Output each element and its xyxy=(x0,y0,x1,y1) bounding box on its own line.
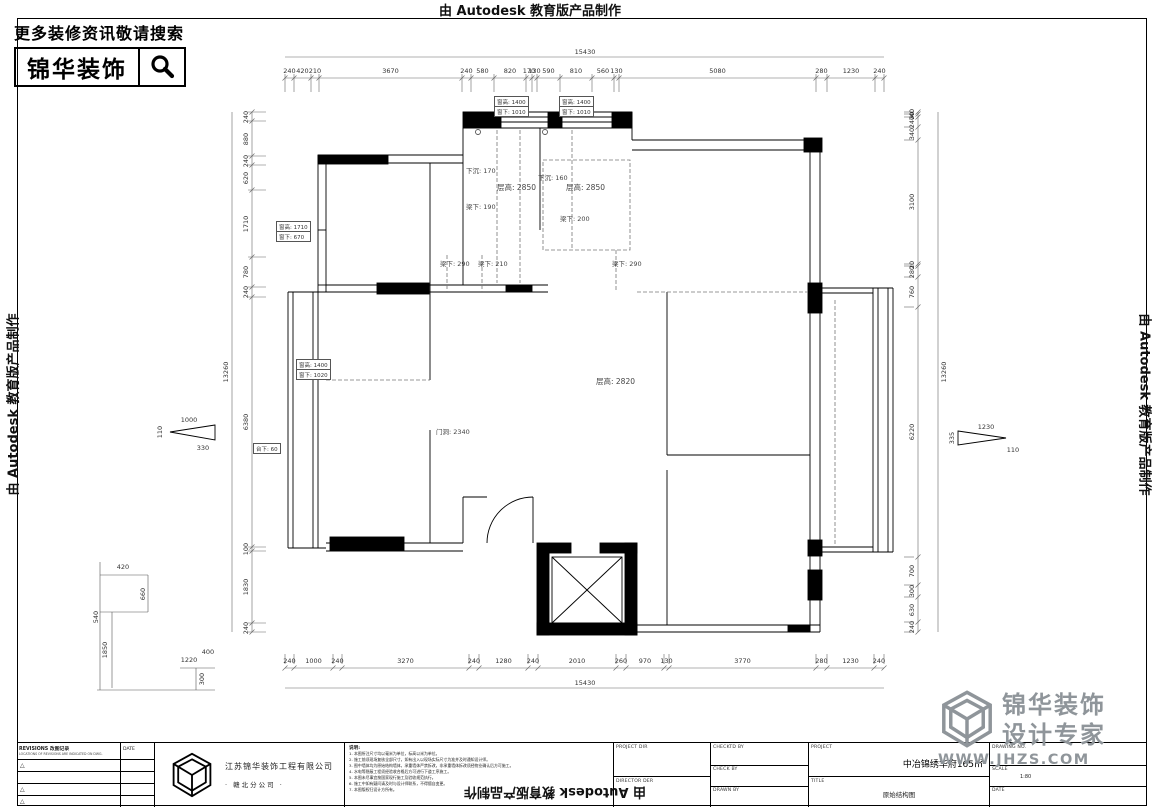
watermark-brand: 锦华装饰 xyxy=(1002,690,1106,720)
company-name: 江苏锦华装饰工程有限公司 xyxy=(225,761,333,772)
dim-label: 6220 xyxy=(908,424,916,441)
dim-label: 700 xyxy=(908,565,916,577)
field-project-dir: PROJECT DIR xyxy=(616,745,648,750)
dim-label: 580 xyxy=(476,67,488,75)
field-project-label: PROJECT xyxy=(811,745,832,750)
dim-label: 240 xyxy=(527,657,539,665)
dim-label: 6380 xyxy=(242,414,250,431)
company-cube-logo xyxy=(169,752,215,798)
field-check-by: CHECK BY xyxy=(713,767,738,772)
dim-label: 660 xyxy=(139,588,147,600)
dim-label: 590 xyxy=(542,67,554,75)
dim-label: 240 xyxy=(468,657,480,665)
dim-label: 780 xyxy=(242,266,250,278)
dim-label: 400 xyxy=(202,648,214,656)
brand-watermark: 锦华装饰 设计专家 WWW.JHZS.COM xyxy=(938,690,1156,768)
watermark-tagline: 设计专家 xyxy=(1002,720,1106,750)
dim-label: 560 xyxy=(597,67,609,75)
dim-label: 3670 xyxy=(382,67,399,75)
dim-label: 760 xyxy=(908,286,916,298)
dim-label: 1000 xyxy=(305,657,322,665)
dim-label: 280 xyxy=(815,657,827,665)
company-cell: 江苏锦华装饰工程有限公司 · 赣北分公司 · xyxy=(155,743,345,807)
dim-label: 110 xyxy=(156,426,164,438)
dim-label: 240 xyxy=(873,657,885,665)
watermark-cube-logo xyxy=(938,690,996,748)
revisions-date-header: DATE xyxy=(123,747,135,752)
dim-label: 13260 xyxy=(940,362,948,383)
watermark-url: WWW.JHZS.COM xyxy=(938,752,1156,768)
dim-label: 240 xyxy=(242,286,250,298)
dim-label: 210 xyxy=(309,67,321,75)
dim-label: 13260 xyxy=(222,362,230,383)
dim-label: 1280 xyxy=(495,657,512,665)
dim-label: 15430 xyxy=(575,48,596,56)
dim-label: 240 xyxy=(283,657,295,665)
dim-label: 300 xyxy=(198,673,206,685)
dim-label: 970 xyxy=(639,657,651,665)
scale-value: 1:80 xyxy=(1020,774,1031,780)
revision-row: △ xyxy=(17,795,155,808)
dim-label: 420 xyxy=(296,67,308,75)
dim-label: 630 xyxy=(908,603,916,615)
dim-label: 880 xyxy=(242,132,250,144)
brand-name: 锦华装饰 xyxy=(16,49,138,85)
search-icon xyxy=(138,49,184,85)
dim-label: 280 xyxy=(815,67,827,75)
dim-label: 1850 xyxy=(101,642,109,659)
dim-label: 1710 xyxy=(242,215,250,232)
dim-label: 130 xyxy=(610,67,622,75)
dim-label: 240 xyxy=(908,116,916,128)
brand-banner: 更多装修资讯敬请搜索 锦华装饰 xyxy=(14,20,186,87)
dim-label: 1830 xyxy=(242,579,250,596)
dim-label: 330 xyxy=(197,444,209,452)
dim-label: 100 xyxy=(242,543,250,555)
dim-label: 260 xyxy=(615,657,627,665)
dim-label: 240 xyxy=(242,621,250,633)
company-branch: · 赣北分公司 · xyxy=(225,779,333,789)
autodesk-note-bottom: 由 Autodesk 教育版产品制作 xyxy=(420,784,690,803)
dim-label: 420 xyxy=(117,563,129,571)
banner-tagline: 更多装修资讯敬请搜索 xyxy=(14,20,186,44)
field-title-label: TITLE xyxy=(811,779,824,784)
dimension-labels: 2404202103670240580820170130590810560130… xyxy=(0,0,1158,809)
dim-label: 110 xyxy=(1007,446,1019,454)
revisions-title: REVISIONS 改图记录 xyxy=(19,745,69,752)
dim-label: 240 xyxy=(283,67,295,75)
dim-label: 340 xyxy=(908,127,916,139)
dim-label: 1000 xyxy=(181,416,198,424)
dim-label: 300 xyxy=(908,585,916,597)
dim-label: 335 xyxy=(948,432,956,444)
dim-label: 240 xyxy=(460,67,472,75)
dim-label: 240 xyxy=(331,657,343,665)
field-drawn-by: DRAWN BY xyxy=(713,788,739,793)
dim-label: 3100 xyxy=(908,194,916,211)
dim-label: 810 xyxy=(570,67,582,75)
field-date-label: DATE xyxy=(992,788,1005,793)
revisions-table: REVISIONS 改图记录 LOCATIONS OF REVISIONS AR… xyxy=(17,743,155,807)
dim-label: 2010 xyxy=(569,657,586,665)
brand-logo-box: 锦华装饰 xyxy=(14,47,186,87)
dim-label: 1230 xyxy=(978,423,995,431)
cad-sheet: 由 Autodesk 教育版产品制作 由 Autodesk 教育版产品制作 由 … xyxy=(0,0,1158,809)
revisions-subtitle: LOCATIONS OF REVISIONS ARE INDICATED ON … xyxy=(19,752,102,756)
dim-label: 240 xyxy=(242,110,250,122)
dim-label: 130 xyxy=(660,657,672,665)
dim-label: 820 xyxy=(504,67,516,75)
dim-label: 240 xyxy=(908,621,916,633)
dim-label: 3270 xyxy=(397,657,414,665)
dim-label: 130 xyxy=(528,67,540,75)
drawing-title: 原始结构图 xyxy=(809,789,989,799)
dim-label: 3770 xyxy=(734,657,751,665)
dim-label: 1230 xyxy=(843,67,860,75)
dim-label: 280 xyxy=(908,265,916,277)
dim-label: 15430 xyxy=(575,679,596,687)
dim-label: 540 xyxy=(92,611,100,623)
dim-label: 5080 xyxy=(709,67,726,75)
dim-label: 1230 xyxy=(842,657,859,665)
dim-label: 240 xyxy=(242,154,250,166)
dim-label: 240 xyxy=(873,67,885,75)
field-col-2: CHECKTD BY CHECK BY DRAWN BY xyxy=(711,743,809,807)
dim-label: 620 xyxy=(242,171,250,183)
dim-label: 1220 xyxy=(181,656,198,664)
field-checked-by: CHECKTD BY xyxy=(713,745,744,750)
